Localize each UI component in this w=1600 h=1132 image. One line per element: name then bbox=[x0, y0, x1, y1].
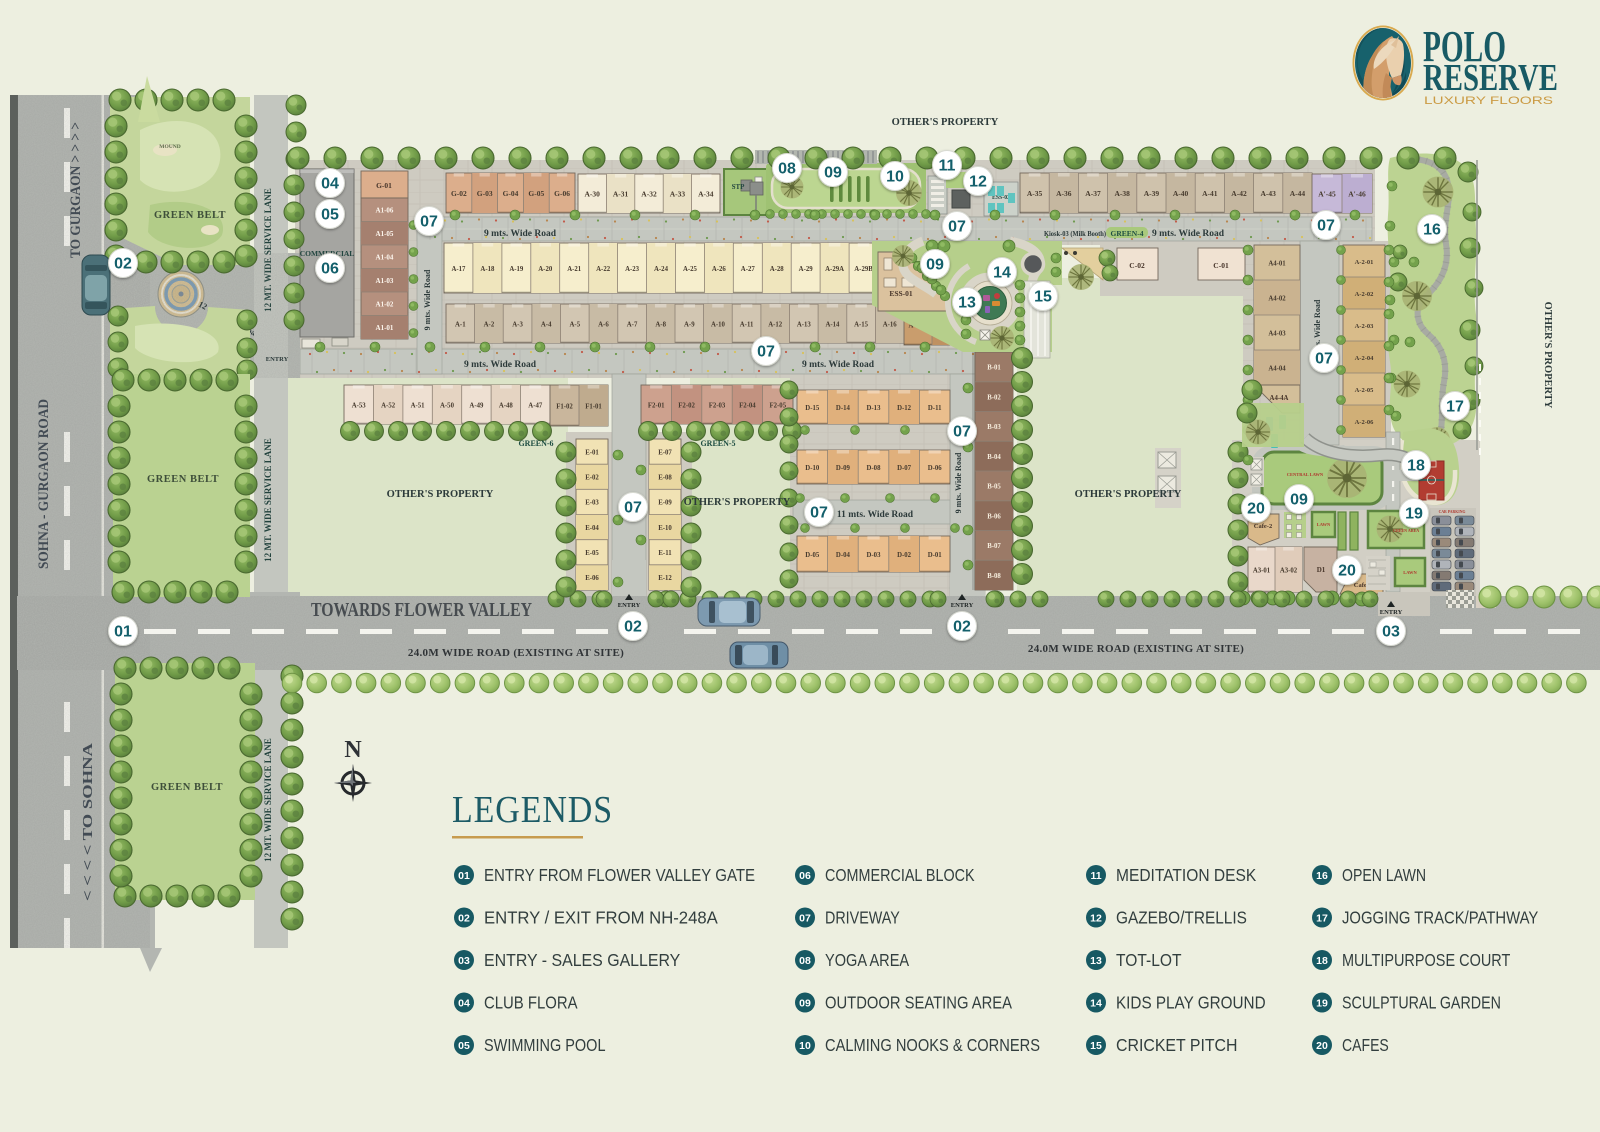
svg-text:A-53: A-53 bbox=[352, 403, 367, 410]
svg-text:E-07: E-07 bbox=[658, 449, 672, 456]
svg-text:11 mts. Wide Road: 11 mts. Wide Road bbox=[837, 510, 914, 520]
svg-text:D-09: D-09 bbox=[836, 465, 851, 472]
svg-text:A3-02: A3-02 bbox=[1280, 568, 1298, 575]
svg-text:D-12: D-12 bbox=[897, 405, 912, 412]
svg-text:A-2-01: A-2-01 bbox=[1355, 259, 1374, 266]
svg-text:GREEN BELT: GREEN BELT bbox=[151, 782, 223, 793]
svg-text:F2-02: F2-02 bbox=[678, 403, 695, 410]
svg-text:A-38: A-38 bbox=[1114, 189, 1130, 198]
svg-text:D-02: D-02 bbox=[897, 552, 912, 559]
svg-text:A-43: A-43 bbox=[1260, 189, 1276, 198]
svg-text:01: 01 bbox=[458, 870, 470, 882]
svg-text:MULTIPURPOSE COURT: MULTIPURPOSE COURT bbox=[1342, 950, 1511, 970]
svg-text:B-07: B-07 bbox=[987, 543, 1001, 550]
svg-text:SCULPTURAL GARDEN: SCULPTURAL GARDEN bbox=[1342, 993, 1501, 1013]
svg-text:24.0M WIDE ROAD (EXISTING AT S: 24.0M WIDE ROAD (EXISTING AT SITE) bbox=[1028, 643, 1244, 655]
svg-text:09: 09 bbox=[1290, 492, 1308, 509]
svg-text:B-04: B-04 bbox=[987, 454, 1001, 461]
svg-text:ENTRY FROM FLOWER VALLEY GATE: ENTRY FROM FLOWER VALLEY GATE bbox=[484, 865, 755, 885]
svg-text:A1-03: A1-03 bbox=[376, 277, 394, 285]
svg-text:08: 08 bbox=[778, 161, 796, 178]
svg-text:A-29A: A-29A bbox=[825, 266, 844, 273]
svg-text:GREEN BELT: GREEN BELT bbox=[154, 210, 226, 221]
svg-text:B-06: B-06 bbox=[987, 513, 1001, 520]
svg-text:06: 06 bbox=[321, 261, 339, 278]
svg-text:A-7: A-7 bbox=[627, 322, 638, 329]
svg-text:A-27: A-27 bbox=[741, 266, 756, 273]
svg-text:GREEN-4: GREEN-4 bbox=[1111, 229, 1144, 238]
svg-text:E-11: E-11 bbox=[658, 550, 672, 557]
svg-text:A-48: A-48 bbox=[499, 403, 514, 410]
svg-text:24.0M WIDE ROAD (EXISTING AT S: 24.0M WIDE ROAD (EXISTING AT SITE) bbox=[408, 647, 624, 659]
svg-text:F2-03: F2-03 bbox=[709, 403, 726, 410]
svg-text:A1-04: A1-04 bbox=[376, 254, 394, 262]
svg-text:A-2-03: A-2-03 bbox=[1355, 323, 1375, 330]
svg-text:19: 19 bbox=[1405, 506, 1423, 523]
svg-text:A-1: A-1 bbox=[455, 322, 466, 329]
svg-text:A-37: A-37 bbox=[1085, 189, 1101, 198]
svg-text:11: 11 bbox=[939, 158, 956, 175]
svg-text:A1-02: A1-02 bbox=[376, 301, 394, 309]
svg-text:A-6: A-6 bbox=[598, 322, 609, 329]
svg-text:17: 17 bbox=[1446, 399, 1464, 416]
svg-text:OUTDOOR SEATING AREA: OUTDOOR SEATING AREA bbox=[825, 993, 1012, 1013]
svg-text:LAWN: LAWN bbox=[1403, 570, 1417, 575]
svg-text:A-52: A-52 bbox=[381, 403, 396, 410]
svg-text:F2-01: F2-01 bbox=[648, 403, 665, 410]
svg-text:13: 13 bbox=[1090, 955, 1102, 967]
svg-text:E-12: E-12 bbox=[658, 575, 672, 582]
svg-text:9 mts. Wide Road: 9 mts. Wide Road bbox=[464, 360, 537, 370]
svg-text:A4-02: A4-02 bbox=[1268, 295, 1286, 302]
svg-text:A-47: A-47 bbox=[528, 403, 543, 410]
svg-text:A-33: A-33 bbox=[670, 190, 686, 199]
svg-text:G-02: G-02 bbox=[451, 189, 467, 198]
svg-text:07: 07 bbox=[810, 505, 828, 522]
svg-text:16: 16 bbox=[1316, 870, 1328, 882]
svg-text:CLUB FLORA: CLUB FLORA bbox=[484, 993, 578, 1013]
svg-text:17: 17 bbox=[1316, 912, 1328, 924]
svg-text:D-07: D-07 bbox=[897, 465, 912, 472]
svg-text:ENTRY - SALES GALLERY: ENTRY - SALES GALLERY bbox=[484, 950, 681, 970]
svg-text:A-4: A-4 bbox=[541, 322, 552, 329]
svg-text:05: 05 bbox=[458, 1040, 470, 1052]
svg-text:RESERVE: RESERVE bbox=[1423, 57, 1558, 99]
svg-text:10: 10 bbox=[799, 1040, 811, 1052]
svg-text:A-40: A-40 bbox=[1173, 189, 1189, 198]
svg-text:A-26: A-26 bbox=[712, 266, 727, 273]
svg-text:A-49: A-49 bbox=[469, 403, 484, 410]
svg-text:A-30: A-30 bbox=[584, 190, 600, 199]
svg-text:A-2-04: A-2-04 bbox=[1355, 355, 1375, 362]
svg-text:9 mts. Wide Road: 9 mts. Wide Road bbox=[954, 452, 963, 513]
svg-text:B-02: B-02 bbox=[987, 394, 1001, 401]
svg-text:ESS-01: ESS-01 bbox=[889, 289, 913, 298]
svg-text:DRIVEWAY: DRIVEWAY bbox=[825, 908, 900, 928]
svg-text:A1-01: A1-01 bbox=[376, 324, 394, 332]
svg-text:TOWARDS FLOWER VALLEY: TOWARDS FLOWER VALLEY bbox=[311, 600, 532, 621]
svg-text:10: 10 bbox=[886, 169, 904, 186]
svg-text:G-03: G-03 bbox=[477, 189, 493, 198]
svg-text:STP: STP bbox=[732, 183, 746, 191]
svg-text:A1-05: A1-05 bbox=[376, 230, 394, 238]
svg-text:A-10: A-10 bbox=[711, 322, 726, 329]
svg-text:D-14: D-14 bbox=[836, 405, 851, 412]
svg-text:A-41: A-41 bbox=[1202, 189, 1218, 198]
svg-text:A-50: A-50 bbox=[440, 403, 455, 410]
svg-text:D-10: D-10 bbox=[805, 465, 820, 472]
svg-text:G-05: G-05 bbox=[528, 189, 544, 198]
svg-text:04: 04 bbox=[458, 997, 470, 1009]
svg-text:E-08: E-08 bbox=[658, 475, 672, 482]
svg-text:12: 12 bbox=[1090, 912, 1102, 924]
svg-text:12 MT. WIDE SERVICE LANE: 12 MT. WIDE SERVICE LANE bbox=[263, 438, 273, 562]
svg-text:SWIMMING POOL: SWIMMING POOL bbox=[484, 1035, 606, 1055]
svg-text:12: 12 bbox=[969, 174, 987, 191]
svg-text:GREEN-6: GREEN-6 bbox=[518, 439, 553, 448]
svg-text:D-05: D-05 bbox=[805, 552, 820, 559]
svg-text:N: N bbox=[344, 737, 362, 763]
svg-text:18: 18 bbox=[1316, 955, 1328, 967]
svg-text:16: 16 bbox=[1423, 222, 1441, 239]
svg-text:G-06: G-06 bbox=[554, 189, 570, 198]
svg-text:YOGA AREA: YOGA AREA bbox=[825, 950, 909, 970]
svg-text:ENTRY: ENTRY bbox=[951, 602, 974, 609]
svg-text:A-17: A-17 bbox=[451, 266, 466, 273]
svg-text:9 mts. Wide Road: 9 mts. Wide Road bbox=[1152, 229, 1225, 239]
svg-text:OTHER'S PROPERTY: OTHER'S PROPERTY bbox=[892, 117, 999, 128]
svg-text:D-01: D-01 bbox=[928, 552, 943, 559]
svg-text:A-18: A-18 bbox=[480, 266, 495, 273]
svg-text:A-51: A-51 bbox=[411, 403, 426, 410]
svg-text:08: 08 bbox=[799, 955, 811, 967]
svg-text:D-15: D-15 bbox=[805, 405, 820, 412]
svg-text:12 MT. WIDE SERVICE LANE: 12 MT. WIDE SERVICE LANE bbox=[263, 738, 273, 862]
svg-text:07: 07 bbox=[1317, 218, 1335, 235]
svg-text:A'-45: A'-45 bbox=[1318, 190, 1336, 199]
svg-text:LEGENDS: LEGENDS bbox=[452, 789, 613, 831]
svg-text:COMMERCIAL BLOCK: COMMERCIAL BLOCK bbox=[825, 865, 975, 885]
svg-text:07: 07 bbox=[757, 344, 775, 361]
svg-text:GAZEBO/TRELLIS: GAZEBO/TRELLIS bbox=[1116, 908, 1247, 928]
svg-text:A4-4A: A4-4A bbox=[1270, 395, 1289, 402]
svg-text:KIDS PLAY GROUND: KIDS PLAY GROUND bbox=[1116, 993, 1266, 1013]
svg-text:B-03: B-03 bbox=[987, 424, 1001, 431]
svg-text:CENTRAL LAWN: CENTRAL LAWN bbox=[1287, 472, 1324, 477]
svg-text:09: 09 bbox=[926, 257, 944, 274]
svg-text:GREEN BELT: GREEN BELT bbox=[147, 474, 219, 485]
svg-text:E-09: E-09 bbox=[658, 500, 672, 507]
svg-text:A4-03: A4-03 bbox=[1268, 330, 1286, 337]
svg-text:ENTRY: ENTRY bbox=[1380, 609, 1403, 616]
svg-text:B-08: B-08 bbox=[987, 573, 1001, 580]
svg-text:D-03: D-03 bbox=[867, 552, 882, 559]
svg-text:A-9: A-9 bbox=[684, 322, 695, 329]
svg-text:ENTRY: ENTRY bbox=[618, 602, 641, 609]
svg-text:A-2: A-2 bbox=[484, 322, 495, 329]
svg-text:F2-05: F2-05 bbox=[769, 403, 786, 410]
svg-text:C-01: C-01 bbox=[1213, 261, 1229, 270]
svg-text:F2-04: F2-04 bbox=[739, 403, 756, 410]
svg-text:A-19: A-19 bbox=[509, 266, 524, 273]
svg-text:A-12: A-12 bbox=[768, 322, 783, 329]
svg-text:A-42: A-42 bbox=[1231, 189, 1247, 198]
svg-text:B-01: B-01 bbox=[987, 365, 1001, 372]
svg-text:A-2-02: A-2-02 bbox=[1355, 291, 1374, 298]
svg-text:G-01: G-01 bbox=[376, 181, 392, 190]
svg-text:07: 07 bbox=[948, 219, 966, 236]
svg-text:15: 15 bbox=[1090, 1040, 1102, 1052]
svg-text:02: 02 bbox=[458, 912, 470, 924]
svg-text:F1-02: F1-02 bbox=[556, 404, 573, 411]
svg-text:13: 13 bbox=[958, 295, 976, 312]
svg-text:D-06: D-06 bbox=[928, 465, 943, 472]
svg-text:A-24: A-24 bbox=[654, 266, 669, 273]
svg-text:A-28: A-28 bbox=[770, 266, 785, 273]
svg-text:A-29B: A-29B bbox=[854, 266, 873, 273]
svg-text:OTHER'S PROPERTY: OTHER'S PROPERTY bbox=[1542, 302, 1553, 409]
svg-text:A-20: A-20 bbox=[538, 266, 553, 273]
svg-text:JOGGING TRACK/PATHWAY: JOGGING TRACK/PATHWAY bbox=[1342, 908, 1539, 928]
svg-text:A-13: A-13 bbox=[797, 322, 812, 329]
svg-text:ENTRY / EXIT FROM NH-248A: ENTRY / EXIT FROM NH-248A bbox=[484, 908, 718, 928]
svg-text:A'-46: A'-46 bbox=[1348, 190, 1366, 199]
svg-text:A-31: A-31 bbox=[613, 190, 629, 199]
svg-text:18: 18 bbox=[1407, 458, 1425, 475]
svg-text:A-29: A-29 bbox=[799, 266, 814, 273]
svg-text:A1-06: A1-06 bbox=[376, 207, 394, 215]
svg-text:9 mts. Wide Road: 9 mts. Wide Road bbox=[802, 360, 875, 370]
svg-text:D1: D1 bbox=[1317, 566, 1326, 574]
svg-text:03: 03 bbox=[1382, 624, 1400, 641]
svg-text:9 mts. Wide Road: 9 mts. Wide Road bbox=[484, 229, 557, 239]
svg-text:07: 07 bbox=[953, 424, 971, 441]
svg-text:A3-01: A3-01 bbox=[1253, 568, 1271, 575]
svg-text:E-04: E-04 bbox=[585, 525, 599, 532]
svg-text:E-06: E-06 bbox=[585, 575, 599, 582]
svg-text:A-16: A-16 bbox=[883, 322, 898, 329]
svg-text:A-2-05: A-2-05 bbox=[1355, 387, 1375, 394]
svg-text:E-10: E-10 bbox=[658, 525, 672, 532]
svg-text:E-05: E-05 bbox=[585, 550, 599, 557]
svg-text:A-39: A-39 bbox=[1144, 189, 1160, 198]
svg-text:19: 19 bbox=[1316, 997, 1328, 1009]
svg-text:E-03: E-03 bbox=[585, 500, 599, 507]
svg-text:A-36: A-36 bbox=[1056, 189, 1072, 198]
svg-text:03: 03 bbox=[458, 955, 470, 967]
svg-text:A-32: A-32 bbox=[641, 190, 657, 199]
svg-text:A-44: A-44 bbox=[1290, 189, 1306, 198]
svg-text:06: 06 bbox=[799, 870, 811, 882]
svg-text:D-11: D-11 bbox=[928, 405, 942, 412]
svg-text:OTHER'S PROPERTY: OTHER'S PROPERTY bbox=[1075, 489, 1182, 500]
svg-text:A4-04: A4-04 bbox=[1268, 365, 1286, 372]
svg-text:MOUND: MOUND bbox=[159, 144, 180, 150]
svg-text:09: 09 bbox=[799, 997, 811, 1009]
svg-text:A-35: A-35 bbox=[1027, 189, 1043, 198]
svg-text:LUXURY FLOORS: LUXURY FLOORS bbox=[1424, 95, 1553, 107]
svg-text:Cafe-2: Cafe-2 bbox=[1254, 523, 1272, 530]
svg-text:D-13: D-13 bbox=[867, 405, 882, 412]
svg-text:C-02: C-02 bbox=[1129, 261, 1145, 270]
svg-text:CAR PARKING: CAR PARKING bbox=[1439, 510, 1466, 514]
svg-text:A-3: A-3 bbox=[512, 322, 523, 329]
svg-text:15: 15 bbox=[1034, 289, 1052, 306]
svg-text:A-15: A-15 bbox=[854, 322, 869, 329]
svg-text:Kiosk-03 (Milk Booth): Kiosk-03 (Milk Booth) bbox=[1044, 229, 1106, 238]
svg-text:A-5: A-5 bbox=[570, 322, 581, 329]
svg-text:20: 20 bbox=[1247, 501, 1265, 518]
svg-text:09: 09 bbox=[824, 165, 842, 182]
svg-text:A-8: A-8 bbox=[655, 322, 666, 329]
svg-text:GREEN-5: GREEN-5 bbox=[700, 439, 735, 448]
svg-text:11: 11 bbox=[1090, 870, 1101, 882]
svg-text:A-34: A-34 bbox=[698, 190, 714, 199]
svg-text:A-21: A-21 bbox=[567, 266, 582, 273]
svg-text:02: 02 bbox=[953, 619, 971, 636]
svg-text:MEDITATION DESK: MEDITATION DESK bbox=[1116, 865, 1256, 885]
svg-text:A-22: A-22 bbox=[596, 266, 611, 273]
svg-text:A-25: A-25 bbox=[683, 266, 698, 273]
svg-text:02: 02 bbox=[624, 619, 642, 636]
svg-text:20: 20 bbox=[1316, 1040, 1328, 1052]
svg-text:A-23: A-23 bbox=[625, 266, 640, 273]
svg-text:CRICKET PITCH: CRICKET PITCH bbox=[1116, 1035, 1238, 1055]
svg-text:07: 07 bbox=[624, 500, 642, 517]
svg-text:02: 02 bbox=[114, 256, 132, 273]
svg-text:07: 07 bbox=[420, 214, 438, 231]
svg-text:F1-01: F1-01 bbox=[585, 404, 602, 411]
svg-text:01: 01 bbox=[114, 624, 132, 641]
svg-text:A4-01: A4-01 bbox=[1268, 260, 1286, 267]
svg-text:07: 07 bbox=[799, 912, 811, 924]
svg-text:04: 04 bbox=[321, 176, 339, 193]
svg-text:D-08: D-08 bbox=[867, 465, 882, 472]
svg-text:GREEN AREA: GREEN AREA bbox=[1393, 528, 1419, 533]
svg-text:E-02: E-02 bbox=[585, 475, 599, 482]
svg-text:OPEN LAWN: OPEN LAWN bbox=[1342, 865, 1426, 885]
svg-text:A-11: A-11 bbox=[740, 322, 754, 329]
svg-text:G-04: G-04 bbox=[503, 189, 519, 198]
svg-text:B-05: B-05 bbox=[987, 484, 1001, 491]
svg-text:9 mts. Wide Road: 9 mts. Wide Road bbox=[423, 269, 432, 330]
svg-text:A-14: A-14 bbox=[825, 322, 840, 329]
svg-text:OTHER'S PROPERTY: OTHER'S PROPERTY bbox=[387, 489, 494, 500]
svg-text:TOT-LOT: TOT-LOT bbox=[1116, 950, 1182, 970]
svg-text:14: 14 bbox=[993, 265, 1011, 282]
svg-text:E-01: E-01 bbox=[585, 449, 599, 456]
svg-text:14: 14 bbox=[1090, 997, 1102, 1009]
svg-text:D-04: D-04 bbox=[836, 552, 851, 559]
svg-text:20: 20 bbox=[1338, 563, 1356, 580]
svg-text:05: 05 bbox=[321, 207, 339, 224]
svg-text:CALMING NOOKS & CORNERS: CALMING NOOKS & CORNERS bbox=[825, 1035, 1040, 1055]
svg-text:CAFES: CAFES bbox=[1342, 1035, 1389, 1055]
svg-text:OTHER'S PROPERTY: OTHER'S PROPERTY bbox=[684, 497, 791, 508]
svg-text:LAWN: LAWN bbox=[1317, 522, 1331, 527]
svg-text:07: 07 bbox=[1315, 351, 1333, 368]
svg-text:A-2-06: A-2-06 bbox=[1355, 419, 1375, 426]
